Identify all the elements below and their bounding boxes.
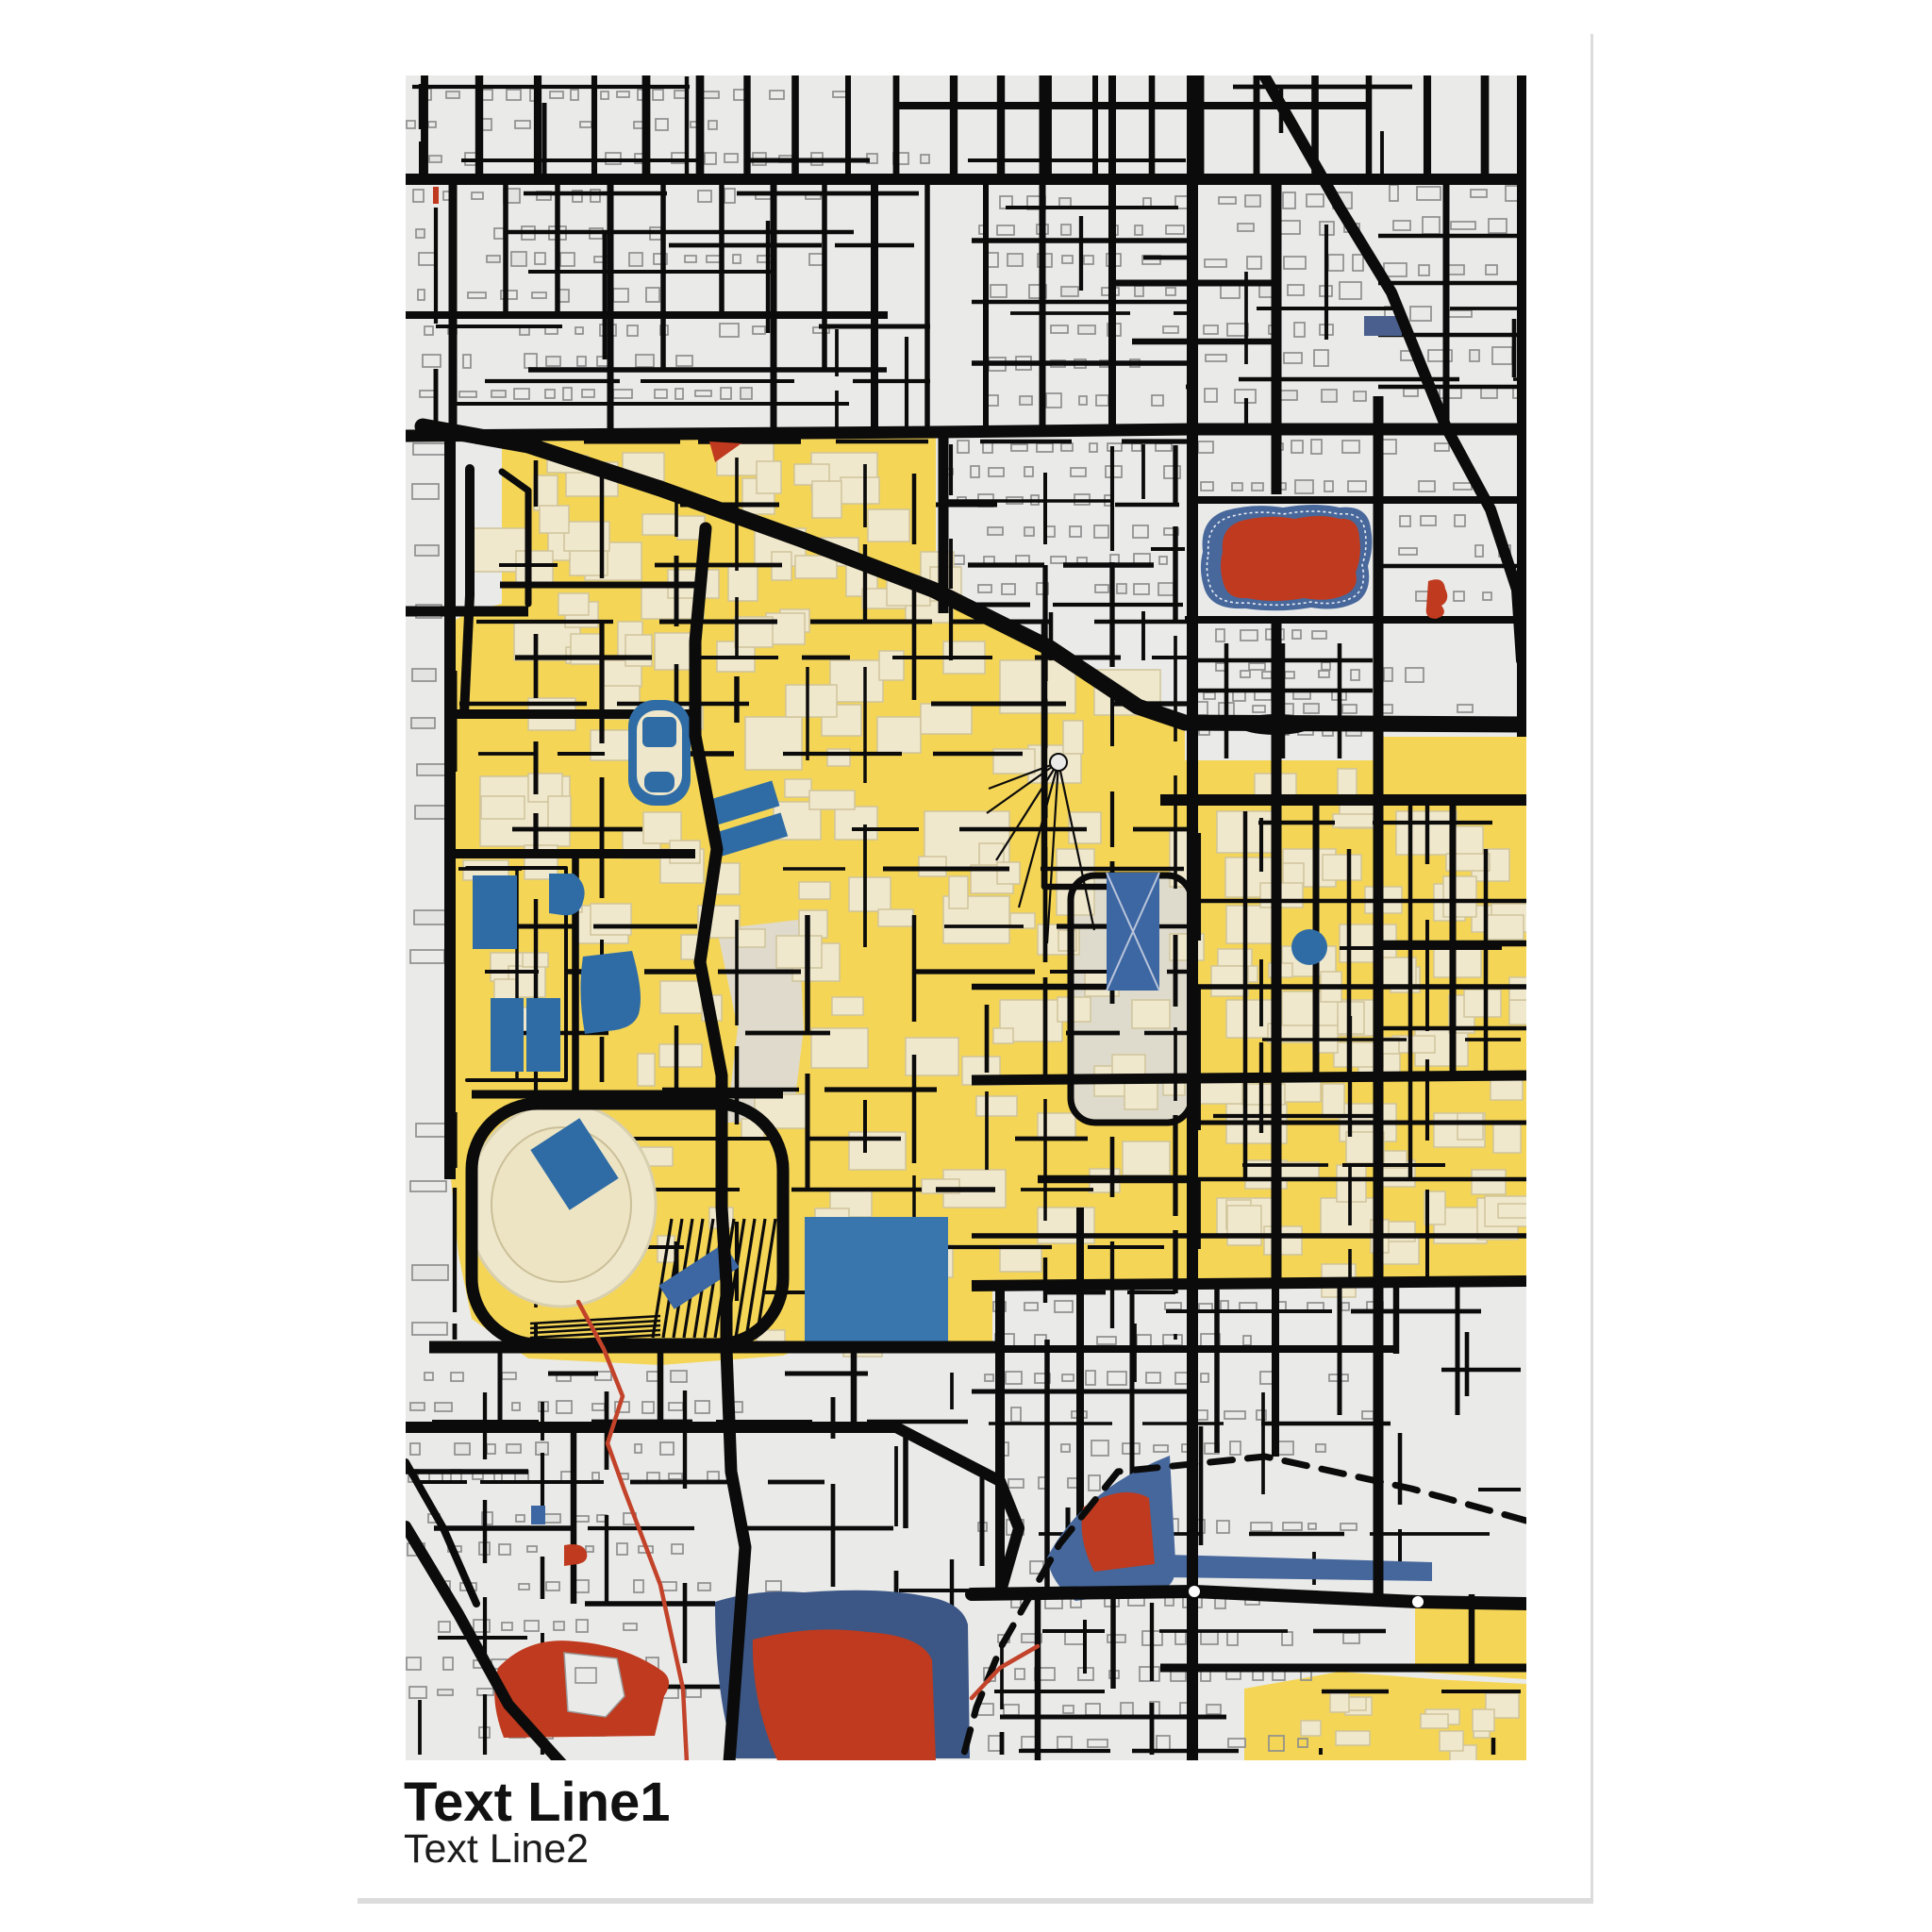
- svg-text:Text Line2: Text Line2: [404, 1826, 589, 1872]
- svg-text:Text Line1: Text Line1: [404, 1772, 671, 1833]
